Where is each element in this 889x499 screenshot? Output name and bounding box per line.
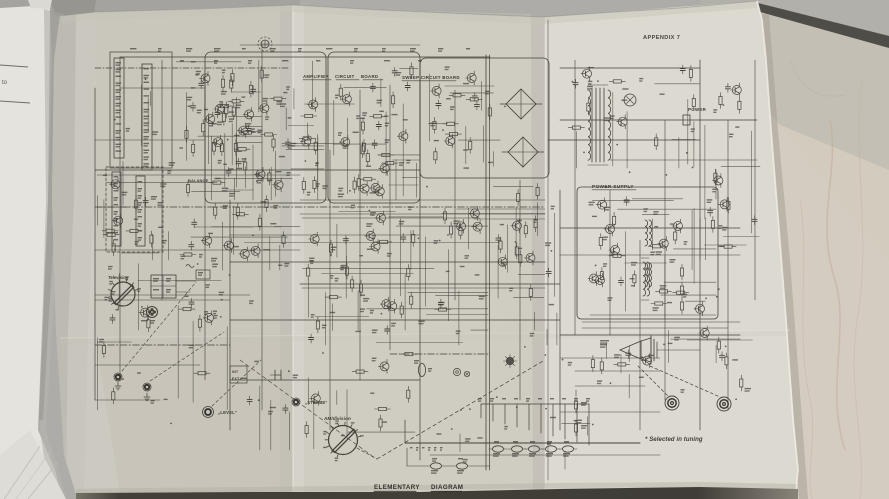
svg-text:BOARD: BOARD [361,74,378,79]
svg-text:* Selected in tuning: * Selected in tuning [645,437,703,443]
svg-text:CIRCUIT: CIRCUIT [335,74,355,79]
svg-text:DIAGRAM: DIAGRAM [431,484,463,491]
svg-text:„LEVEL“: „LEVEL“ [218,410,237,415]
svg-text:INT: INT [232,370,239,374]
svg-text:ELEMENTARY: ELEMENTARY [374,484,420,491]
svg-text:APPENDIX 7: APPENDIX 7 [643,35,680,41]
svg-text:to: to [2,80,8,86]
svg-text:SWEEP CIRCUIT BOARD: SWEEP CIRCUIT BOARD [402,75,460,80]
svg-text:EXT.: EXT. [232,377,240,381]
svg-text:AMPLIFIER: AMPLIFIER [303,74,329,79]
svg-text:POWER: POWER [688,107,707,112]
svg-text:BALANCE: BALANCE [188,178,208,183]
svg-text:Television: Television [108,275,129,280]
